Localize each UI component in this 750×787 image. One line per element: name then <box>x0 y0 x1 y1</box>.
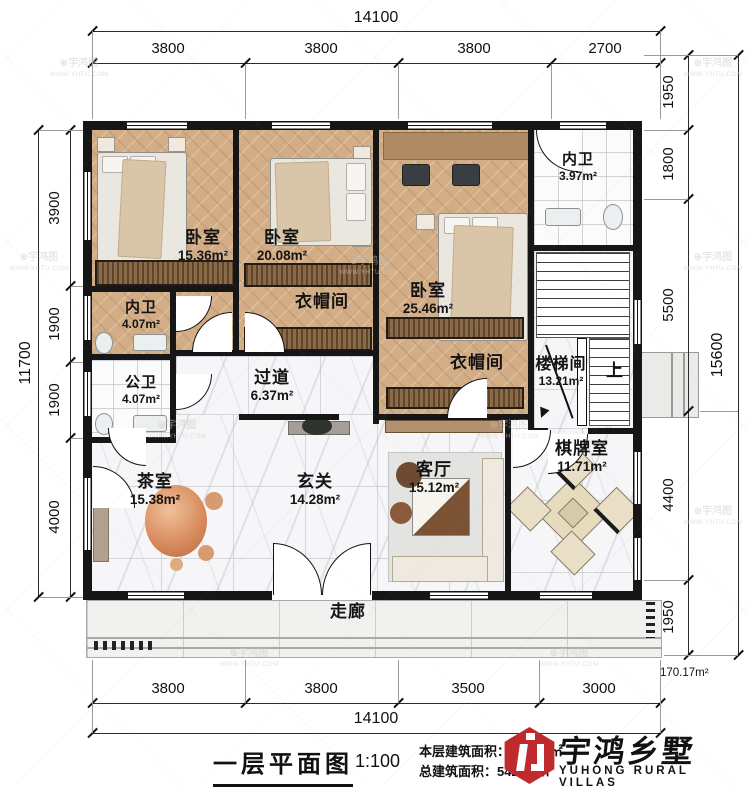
wardrobe <box>244 263 372 287</box>
room-area: 4.07m² <box>96 317 186 331</box>
window <box>83 296 92 340</box>
dim-left-seg: 4000 <box>46 472 62 562</box>
dim-right-seg: 4400 <box>660 450 676 540</box>
toilet <box>603 204 623 230</box>
room-area: 6.37m² <box>217 388 327 404</box>
total-area-label: 总建筑面积： <box>419 764 497 779</box>
tea-stool <box>198 545 214 561</box>
extension-line <box>660 660 661 733</box>
room-name: 内卫 <box>96 299 186 317</box>
dim-left-total: 11700 <box>18 318 34 408</box>
dim-right-seg: 1800 <box>660 119 676 209</box>
wardrobe <box>386 317 524 339</box>
wall <box>588 428 642 434</box>
wall <box>373 121 379 424</box>
sofa <box>392 556 488 582</box>
drawing-title: 一层平面图 <box>213 744 353 787</box>
dim-bottom-seg: 3000 <box>554 680 644 697</box>
corridor-step <box>86 638 662 648</box>
bed-pillow <box>346 193 366 221</box>
extension-line <box>700 411 738 412</box>
desk <box>383 132 530 160</box>
window <box>430 591 488 600</box>
stool <box>390 502 412 524</box>
room-area: 14.28m² <box>260 492 370 508</box>
extension-line <box>39 130 83 131</box>
extension-line <box>398 660 399 703</box>
logo-glyph <box>531 744 544 771</box>
extension-line <box>644 199 688 200</box>
logo-window-icon <box>526 733 535 740</box>
dim-top-seg: 2700 <box>560 40 650 57</box>
window <box>83 478 92 550</box>
room-name: 玄关 <box>260 472 370 492</box>
room-label-bedroom2: 卧室 20.08m² <box>227 228 337 265</box>
room-name: 过道 <box>217 368 327 388</box>
wall <box>239 414 339 420</box>
extension-line <box>398 64 399 119</box>
window <box>83 172 92 240</box>
room-label-ensuite-left: 内卫 4.07m² <box>96 299 186 331</box>
room-area: 15.38m² <box>100 492 210 508</box>
dim-top-total: 14100 <box>331 9 421 27</box>
extension-line <box>71 362 83 363</box>
dim-bottom-seg: 3500 <box>423 680 513 697</box>
hatch-marks <box>94 641 154 650</box>
dim-top-seg: 3800 <box>276 40 366 57</box>
extension-line <box>644 55 738 56</box>
tea-stool <box>170 558 183 571</box>
extension-line <box>551 64 552 119</box>
tv-cabinet <box>385 420 503 433</box>
extension-line <box>39 597 83 598</box>
dim-line <box>70 130 71 597</box>
room-name: 卧室 <box>227 228 337 248</box>
extension-line <box>644 580 688 581</box>
wall <box>528 245 642 251</box>
nightstand <box>168 137 186 152</box>
room-area: 13.21m² <box>512 374 610 388</box>
extension-line <box>539 660 540 703</box>
wall <box>83 286 239 292</box>
room-label-stairwell: 楼梯间 13.21m² <box>512 355 610 389</box>
room-name: 卧室 <box>373 281 483 301</box>
room-label-foyer: 玄关 14.28m² <box>260 472 370 509</box>
room-name: 楼梯间 <box>512 355 610 374</box>
room-name: 走廊 <box>298 602 398 622</box>
area-note: 170.17m² <box>660 667 709 679</box>
room-label-living-room: 客厅 15.12m² <box>379 460 489 497</box>
nightstand <box>97 137 115 152</box>
room-area: 4.07m² <box>96 392 186 406</box>
dim-line <box>688 55 689 655</box>
desk-chair <box>402 164 430 186</box>
window <box>128 591 184 600</box>
window <box>83 372 92 416</box>
extension-line <box>245 64 246 119</box>
room-label-ensuite-top: 内卫 3.97m² <box>525 151 631 183</box>
wall <box>633 121 642 600</box>
room-label-chess-room: 棋牌室 11.71m² <box>527 439 637 476</box>
room-name: 内卫 <box>525 151 631 169</box>
wall <box>83 354 176 360</box>
stairs-up-label: 上 <box>606 356 623 381</box>
room-name: 公卫 <box>96 374 186 392</box>
nightstand <box>416 214 435 230</box>
room-label-passage: 过道 6.37m² <box>217 368 327 405</box>
room-name: 茶室 <box>100 472 210 492</box>
landing-step-line <box>683 353 685 417</box>
window <box>633 538 642 580</box>
corridor-step <box>86 648 662 658</box>
floor-plan-canvas: 卧室 15.36m² 卧室 20.08m² 卧室 25.46m² 内卫 3.97… <box>0 0 750 787</box>
dim-line <box>38 130 39 597</box>
floor-area-label: 本层建筑面积： <box>419 744 510 759</box>
extension-line <box>644 130 688 131</box>
extension-line <box>245 660 246 703</box>
toilet <box>95 332 113 354</box>
dim-right-seg: 5500 <box>660 260 676 350</box>
desk-chair <box>452 164 480 186</box>
dim-right-total: 15600 <box>710 310 726 400</box>
window <box>633 300 642 344</box>
hatch-marks <box>646 602 655 638</box>
wall <box>505 420 511 597</box>
room-label-bedroom3: 卧室 25.46m² <box>373 281 483 318</box>
room-name: 衣帽间 <box>267 292 377 312</box>
dim-top-seg: 3800 <box>123 40 213 57</box>
dim-left-seg: 3900 <box>46 163 62 253</box>
stairs <box>536 252 630 338</box>
room-area: 15.12m² <box>379 480 489 496</box>
dim-line <box>92 63 660 64</box>
watermark: ⊕宇鸿图WWW.YHTU.COM <box>42 58 116 79</box>
room-name: 棋牌室 <box>527 439 637 459</box>
dim-line <box>738 55 739 655</box>
extension-line <box>71 438 83 439</box>
room-label-tea-room: 茶室 15.38m² <box>100 472 210 509</box>
sink <box>133 334 167 351</box>
logo-glyph <box>516 744 528 771</box>
dim-line <box>92 31 660 32</box>
dim-line <box>92 703 660 704</box>
room-label-public-bath: 公卫 4.07m² <box>96 374 186 406</box>
brand-name-en: YUHONG RURAL VILLAS <box>559 765 750 787</box>
room-area: 20.08m² <box>227 248 337 264</box>
room-area: 3.97m² <box>525 169 631 183</box>
dim-bottom-seg: 3800 <box>276 680 366 697</box>
dim-bottom-seg: 3800 <box>123 680 213 697</box>
dim-top-seg: 3800 <box>429 40 519 57</box>
room-label-corridor: 走廊 <box>298 602 398 622</box>
window <box>560 121 606 130</box>
room-name: 客厅 <box>379 460 489 480</box>
window <box>127 121 187 130</box>
extension-line <box>71 286 83 287</box>
window <box>272 121 330 130</box>
room-area: 11.71m² <box>527 459 637 475</box>
extension-line <box>664 655 738 656</box>
sink <box>545 208 581 226</box>
bed-pillow <box>346 163 366 191</box>
drawing-scale: 1:100 <box>355 751 400 772</box>
dim-left-seg: 1900 <box>46 355 62 445</box>
dim-right-seg: 1950 <box>660 572 676 662</box>
dim-bottom-total: 14100 <box>331 710 421 728</box>
room-area: 25.46m² <box>373 301 483 317</box>
extension-line <box>92 31 93 119</box>
window <box>408 121 492 130</box>
extension-line <box>92 660 93 733</box>
room-label-closet1: 衣帽间 <box>267 292 377 312</box>
window <box>540 591 592 600</box>
landing-step-line <box>671 353 673 417</box>
